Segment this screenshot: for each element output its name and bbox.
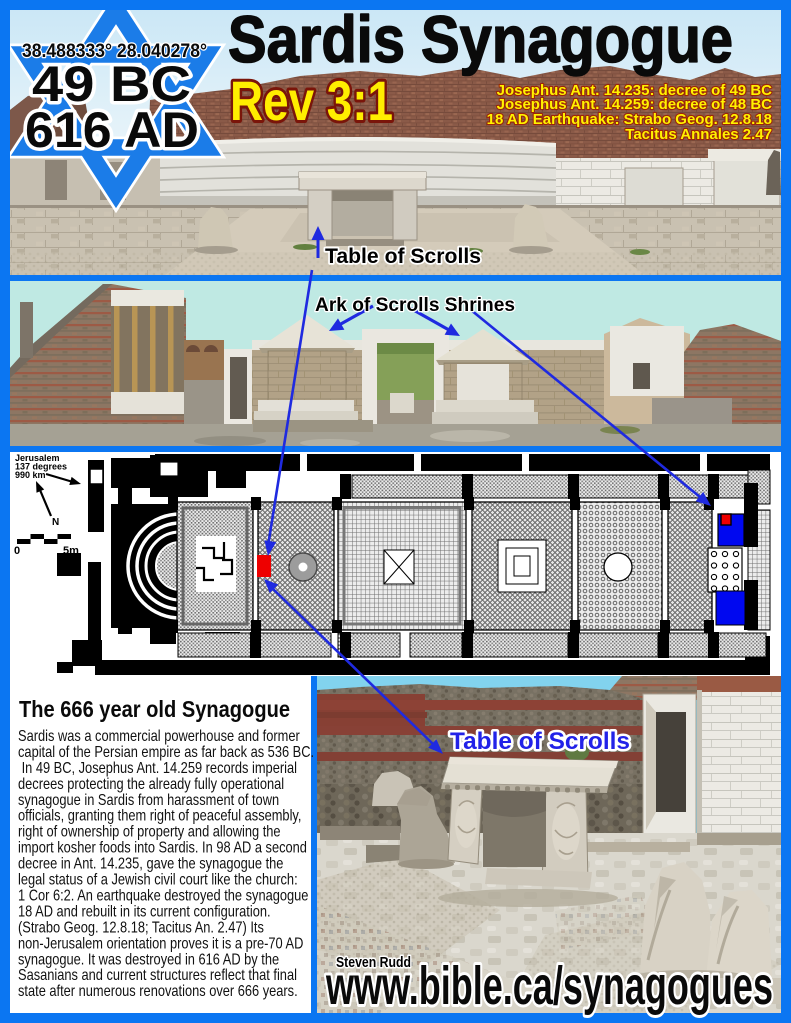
svg-text:Table of Scrolls: Table of Scrolls	[325, 245, 481, 268]
svg-text:Table of Scrolls: Table of Scrolls	[450, 728, 630, 755]
svg-text:The 666 year old Synagogue: The 666 year old Synagogue	[19, 696, 290, 722]
svg-text:Ark of Scrolls Shrines: Ark of Scrolls Shrines	[315, 295, 515, 316]
svg-text:Sardis Synagogue: Sardis Synagogue	[228, 2, 733, 76]
svg-text:www.bible.ca/synagogues: www.bible.ca/synagogues	[325, 956, 773, 1016]
svg-text:0: 0	[14, 545, 20, 557]
svg-text:Tacitus Annales 2.47: Tacitus Annales 2.47	[625, 126, 772, 143]
svg-text:N: N	[52, 517, 59, 528]
svg-text:Rev 3:1: Rev 3:1	[230, 69, 393, 132]
svg-text:990 km: 990 km	[15, 470, 46, 480]
svg-text:616 AD: 616 AD	[25, 102, 199, 158]
svg-text:5m: 5m	[63, 545, 79, 557]
svg-text:Sardis was a commercial powerh: Sardis was a commercial powerhouse and f…	[18, 727, 318, 1000]
